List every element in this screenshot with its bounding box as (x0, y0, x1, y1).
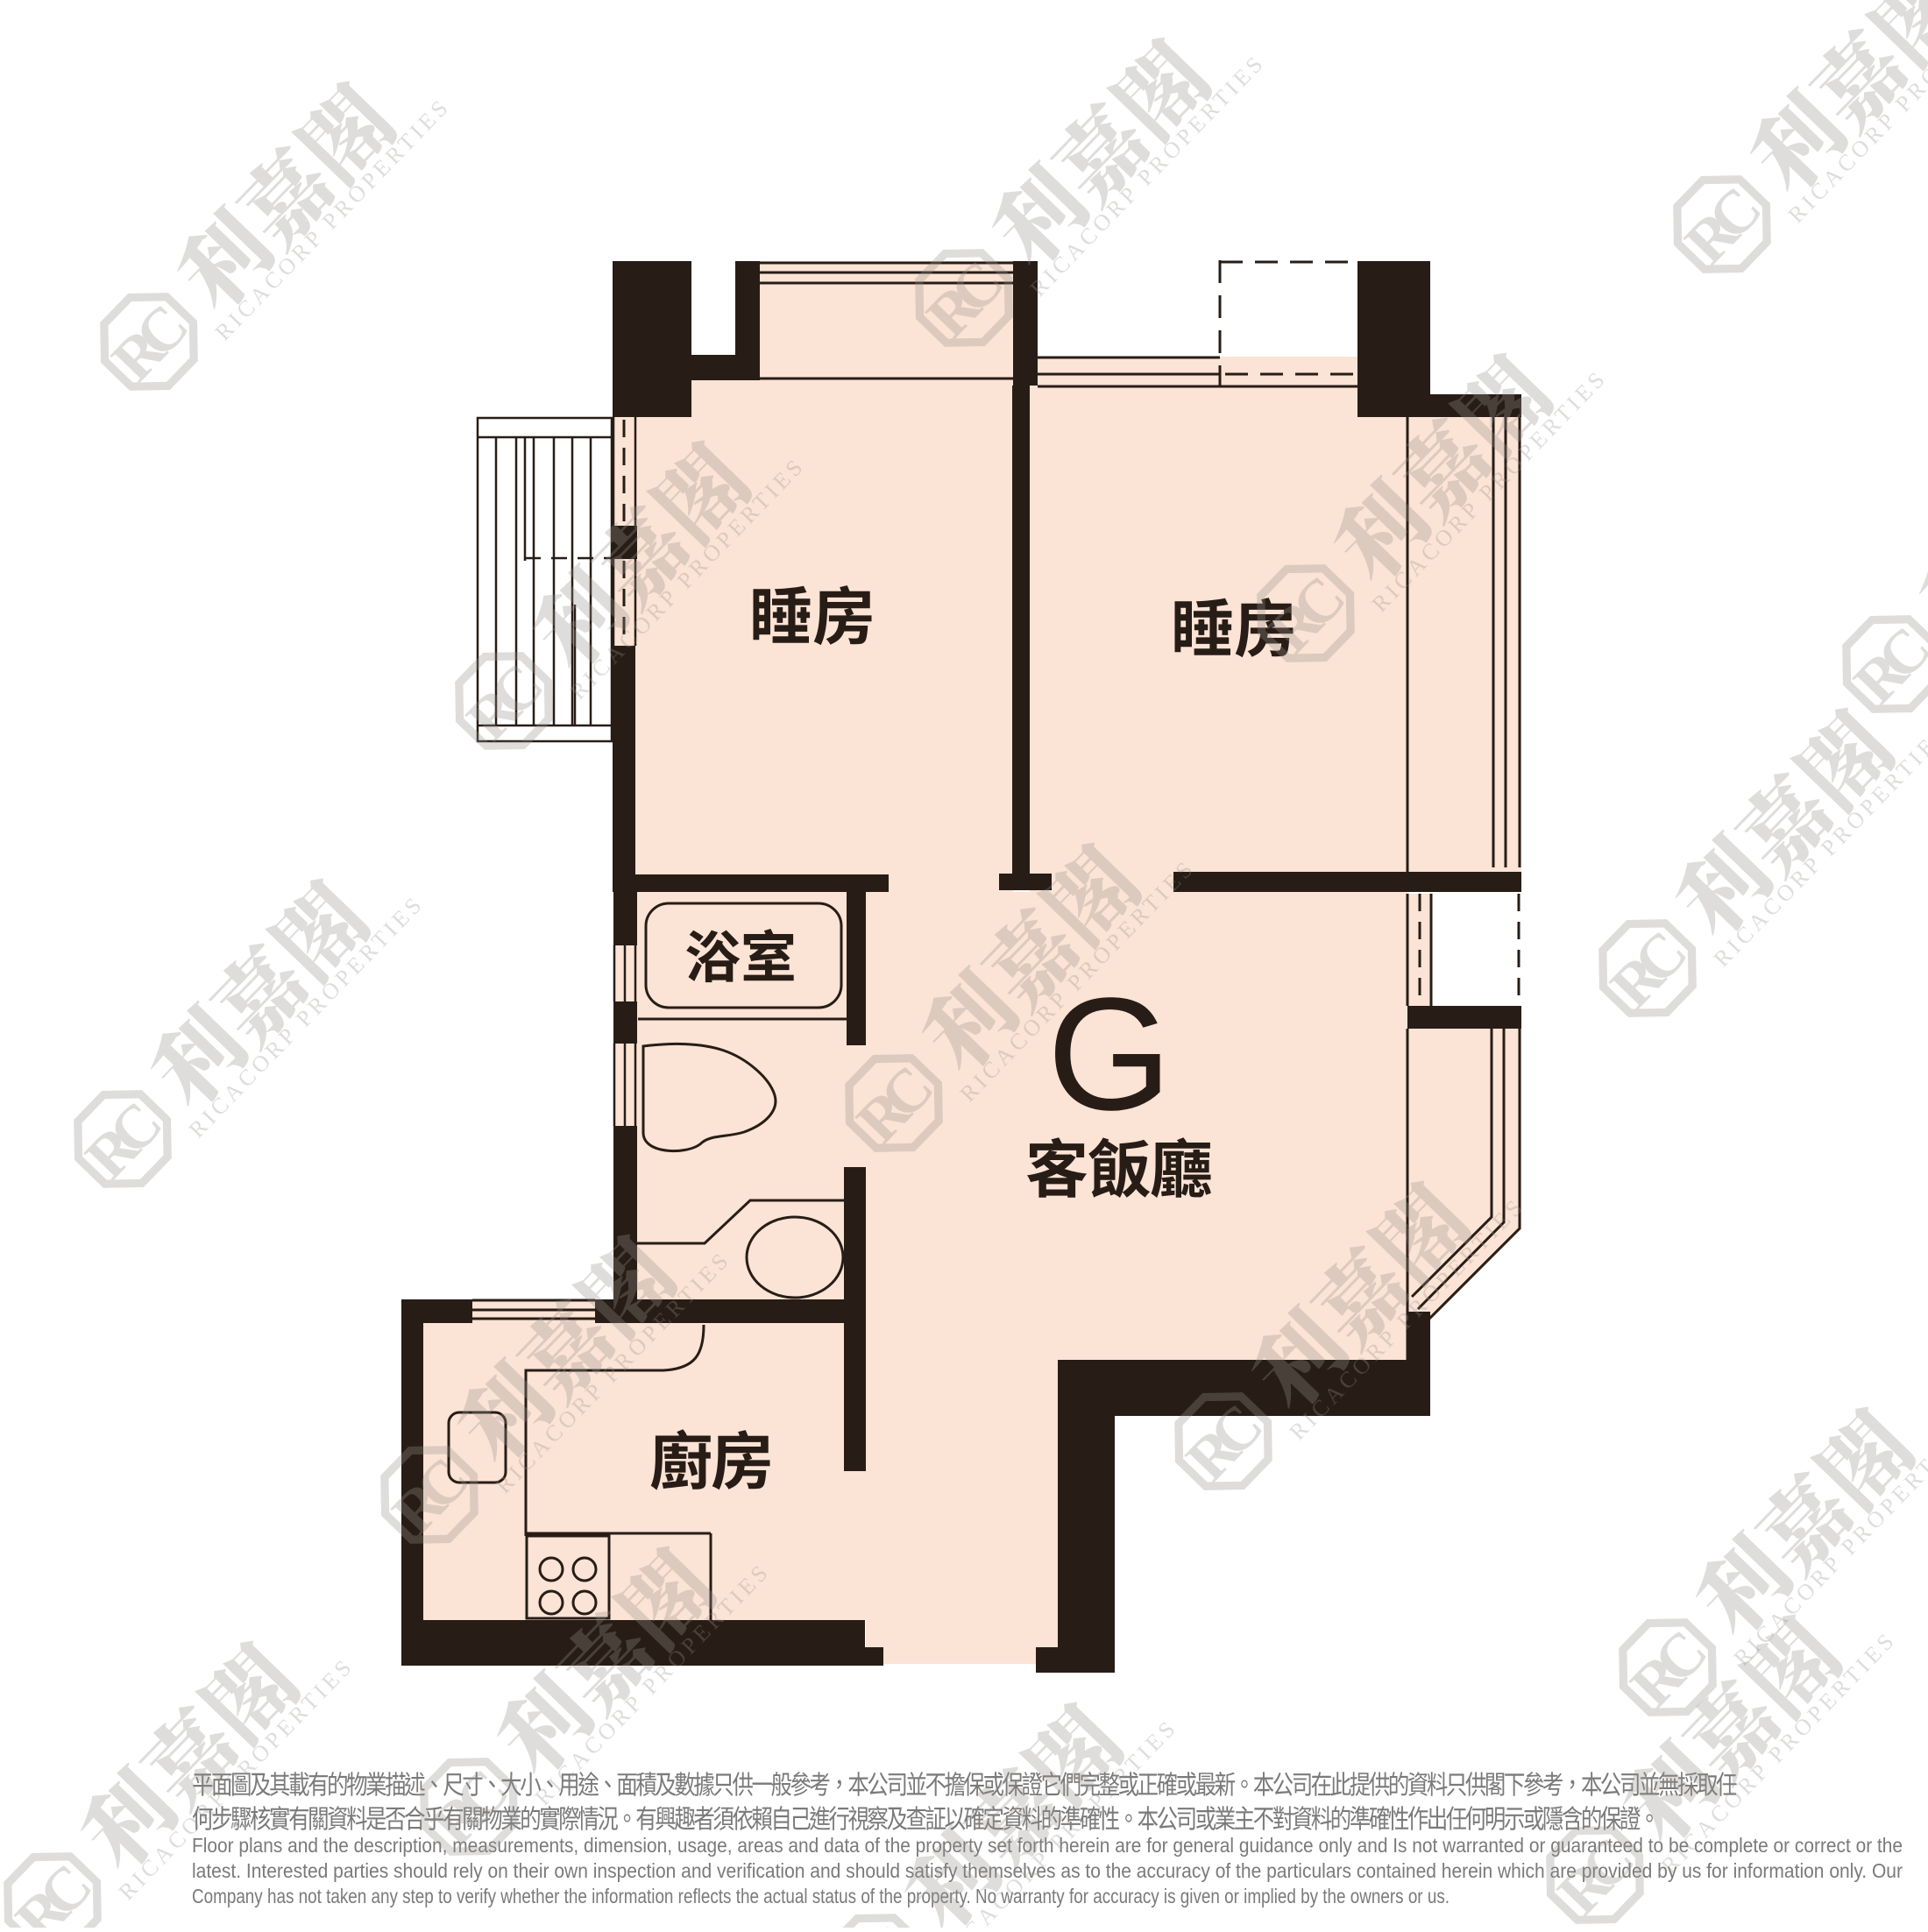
svg-text:Company has not taken any step: Company has not taken any step to verify… (192, 1885, 1450, 1907)
